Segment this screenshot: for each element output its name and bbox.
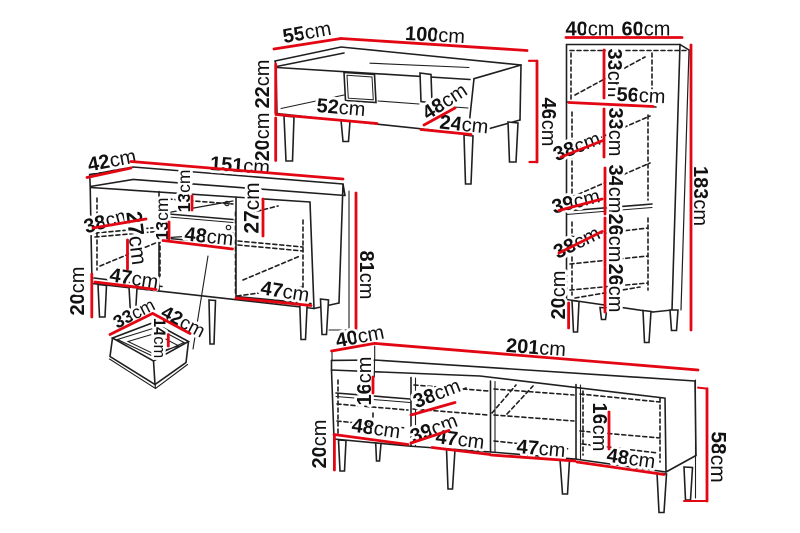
- svg-text:26cm: 26cm: [604, 214, 626, 263]
- svg-text:20cm: 20cm: [309, 420, 331, 469]
- svg-text:151cm: 151cm: [209, 153, 270, 179]
- svg-text:27cm: 27cm: [241, 182, 264, 233]
- svg-text:20cm: 20cm: [548, 271, 570, 320]
- svg-text:46cm: 46cm: [537, 98, 559, 147]
- svg-text:16cm: 16cm: [588, 403, 610, 452]
- svg-text:20cm: 20cm: [67, 267, 89, 316]
- svg-text:20cm: 20cm: [252, 113, 274, 162]
- svg-text:26cm: 26cm: [604, 264, 626, 313]
- svg-text:34cm: 34cm: [604, 165, 626, 214]
- svg-text:81cm: 81cm: [355, 251, 377, 300]
- svg-text:22cm: 22cm: [252, 60, 274, 109]
- svg-text:58cm: 58cm: [707, 431, 730, 482]
- svg-text:33cm: 33cm: [604, 108, 626, 157]
- svg-text:14cm: 14cm: [150, 318, 168, 358]
- svg-text:52cm: 52cm: [316, 95, 367, 121]
